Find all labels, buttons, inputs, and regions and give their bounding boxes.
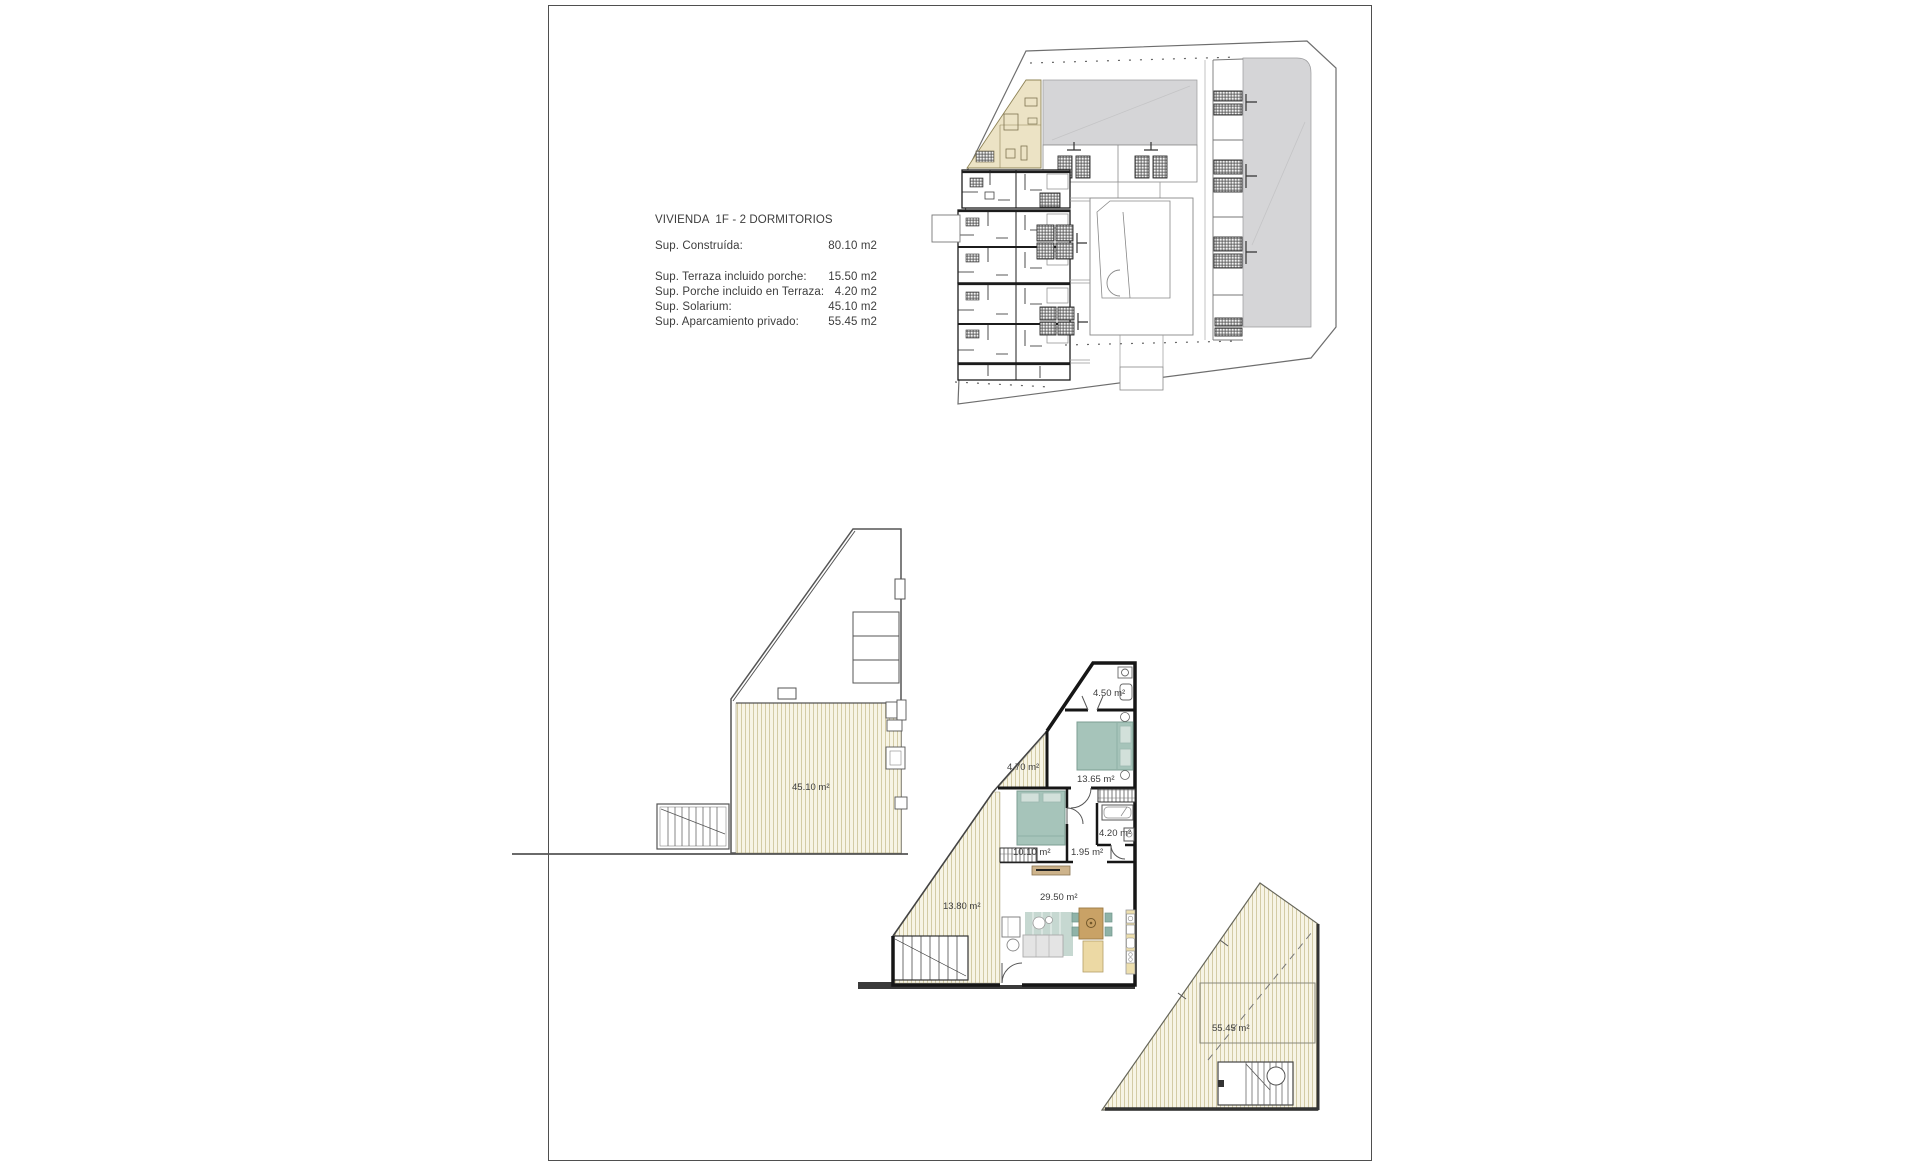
stair-icon — [657, 804, 729, 849]
room-label-terrace-small: 4.70 m² — [1007, 762, 1039, 773]
room-label-bathroom-hall: 4.20 m² — [1099, 828, 1131, 839]
bed-main-icon — [1077, 713, 1133, 780]
spec-row-terraza: Sup. Terraza incluido porche: 15.50 m2 — [655, 270, 877, 285]
room-label-solarium: 45.10 m² — [792, 782, 830, 793]
spec-value: 80.10 m2 — [828, 239, 877, 254]
solarium-plan: 45.10 m² — [505, 524, 915, 864]
spec-label: Sup. Aparcamiento privado: — [655, 315, 799, 330]
bed-second-icon — [1017, 791, 1065, 845]
parking-stair-icon — [1218, 1062, 1293, 1105]
spec-value: 15.50 m2 — [828, 270, 877, 285]
roof-slab-top — [1043, 80, 1197, 145]
site-plan — [930, 30, 1350, 410]
spec-value: 45.10 m2 — [828, 300, 877, 315]
edge-unit — [895, 579, 905, 599]
parking-plan: 55.45 m² — [1100, 878, 1330, 1118]
apartment-cluster-partial — [958, 363, 1070, 380]
room-label-hall: 1.95 m² — [1071, 847, 1103, 858]
spec-row-construida: Sup. Construída: 80.10 m2 — [655, 239, 877, 254]
room-label-bedroom-main: 13.65 m² — [1077, 774, 1115, 785]
spec-label: Sup. Construída: — [655, 239, 743, 254]
living-furniture — [1002, 912, 1073, 957]
spec-value: 4.20 m2 — [835, 285, 877, 300]
room-label-living: 29.50 m² — [1040, 892, 1078, 903]
wardrobe-icon — [1098, 789, 1135, 802]
left-porch — [932, 215, 960, 242]
page-canvas: VIVIENDA 1F - 2 DORMITORIOS Sup. Constru… — [0, 0, 1920, 1166]
spec-label: Sup. Solarium: — [655, 300, 732, 315]
room-label-bathroom-top: 4.50 m² — [1093, 688, 1125, 699]
room-label-parking: 55.45 m² — [1212, 1023, 1250, 1034]
deck-unit — [778, 688, 796, 699]
spec-row-solarium: Sup. Solarium: 45.10 m2 — [655, 300, 877, 315]
spec-value: 55.45 m2 — [828, 315, 877, 330]
sofa-icon — [1023, 935, 1063, 957]
spec-label: Sup. Terraza incluido porche: — [655, 270, 807, 285]
highlighted-unit — [967, 80, 1041, 168]
room-label-bedroom-second: 10.10 m² — [1013, 847, 1051, 858]
sideboard-icon — [1032, 866, 1070, 875]
room-label-terrace-main: 13.80 m² — [943, 901, 981, 912]
spec-block: VIVIENDA 1F - 2 DORMITORIOS Sup. Constru… — [655, 214, 877, 330]
roof-slab-right — [1243, 58, 1311, 327]
spec-row-porche: Sup. Porche incluido en Terraza: 4.20 m2 — [655, 285, 877, 300]
spec-label: Sup. Porche incluido en Terraza: — [655, 285, 824, 300]
plan-title: VIVIENDA 1F - 2 DORMITORIOS — [655, 214, 877, 226]
terrace-stair-icon — [893, 936, 968, 980]
terrace-small — [998, 734, 1046, 788]
spec-row-aparcamiento: Sup. Aparcamiento privado: 55.45 m2 — [655, 315, 877, 330]
